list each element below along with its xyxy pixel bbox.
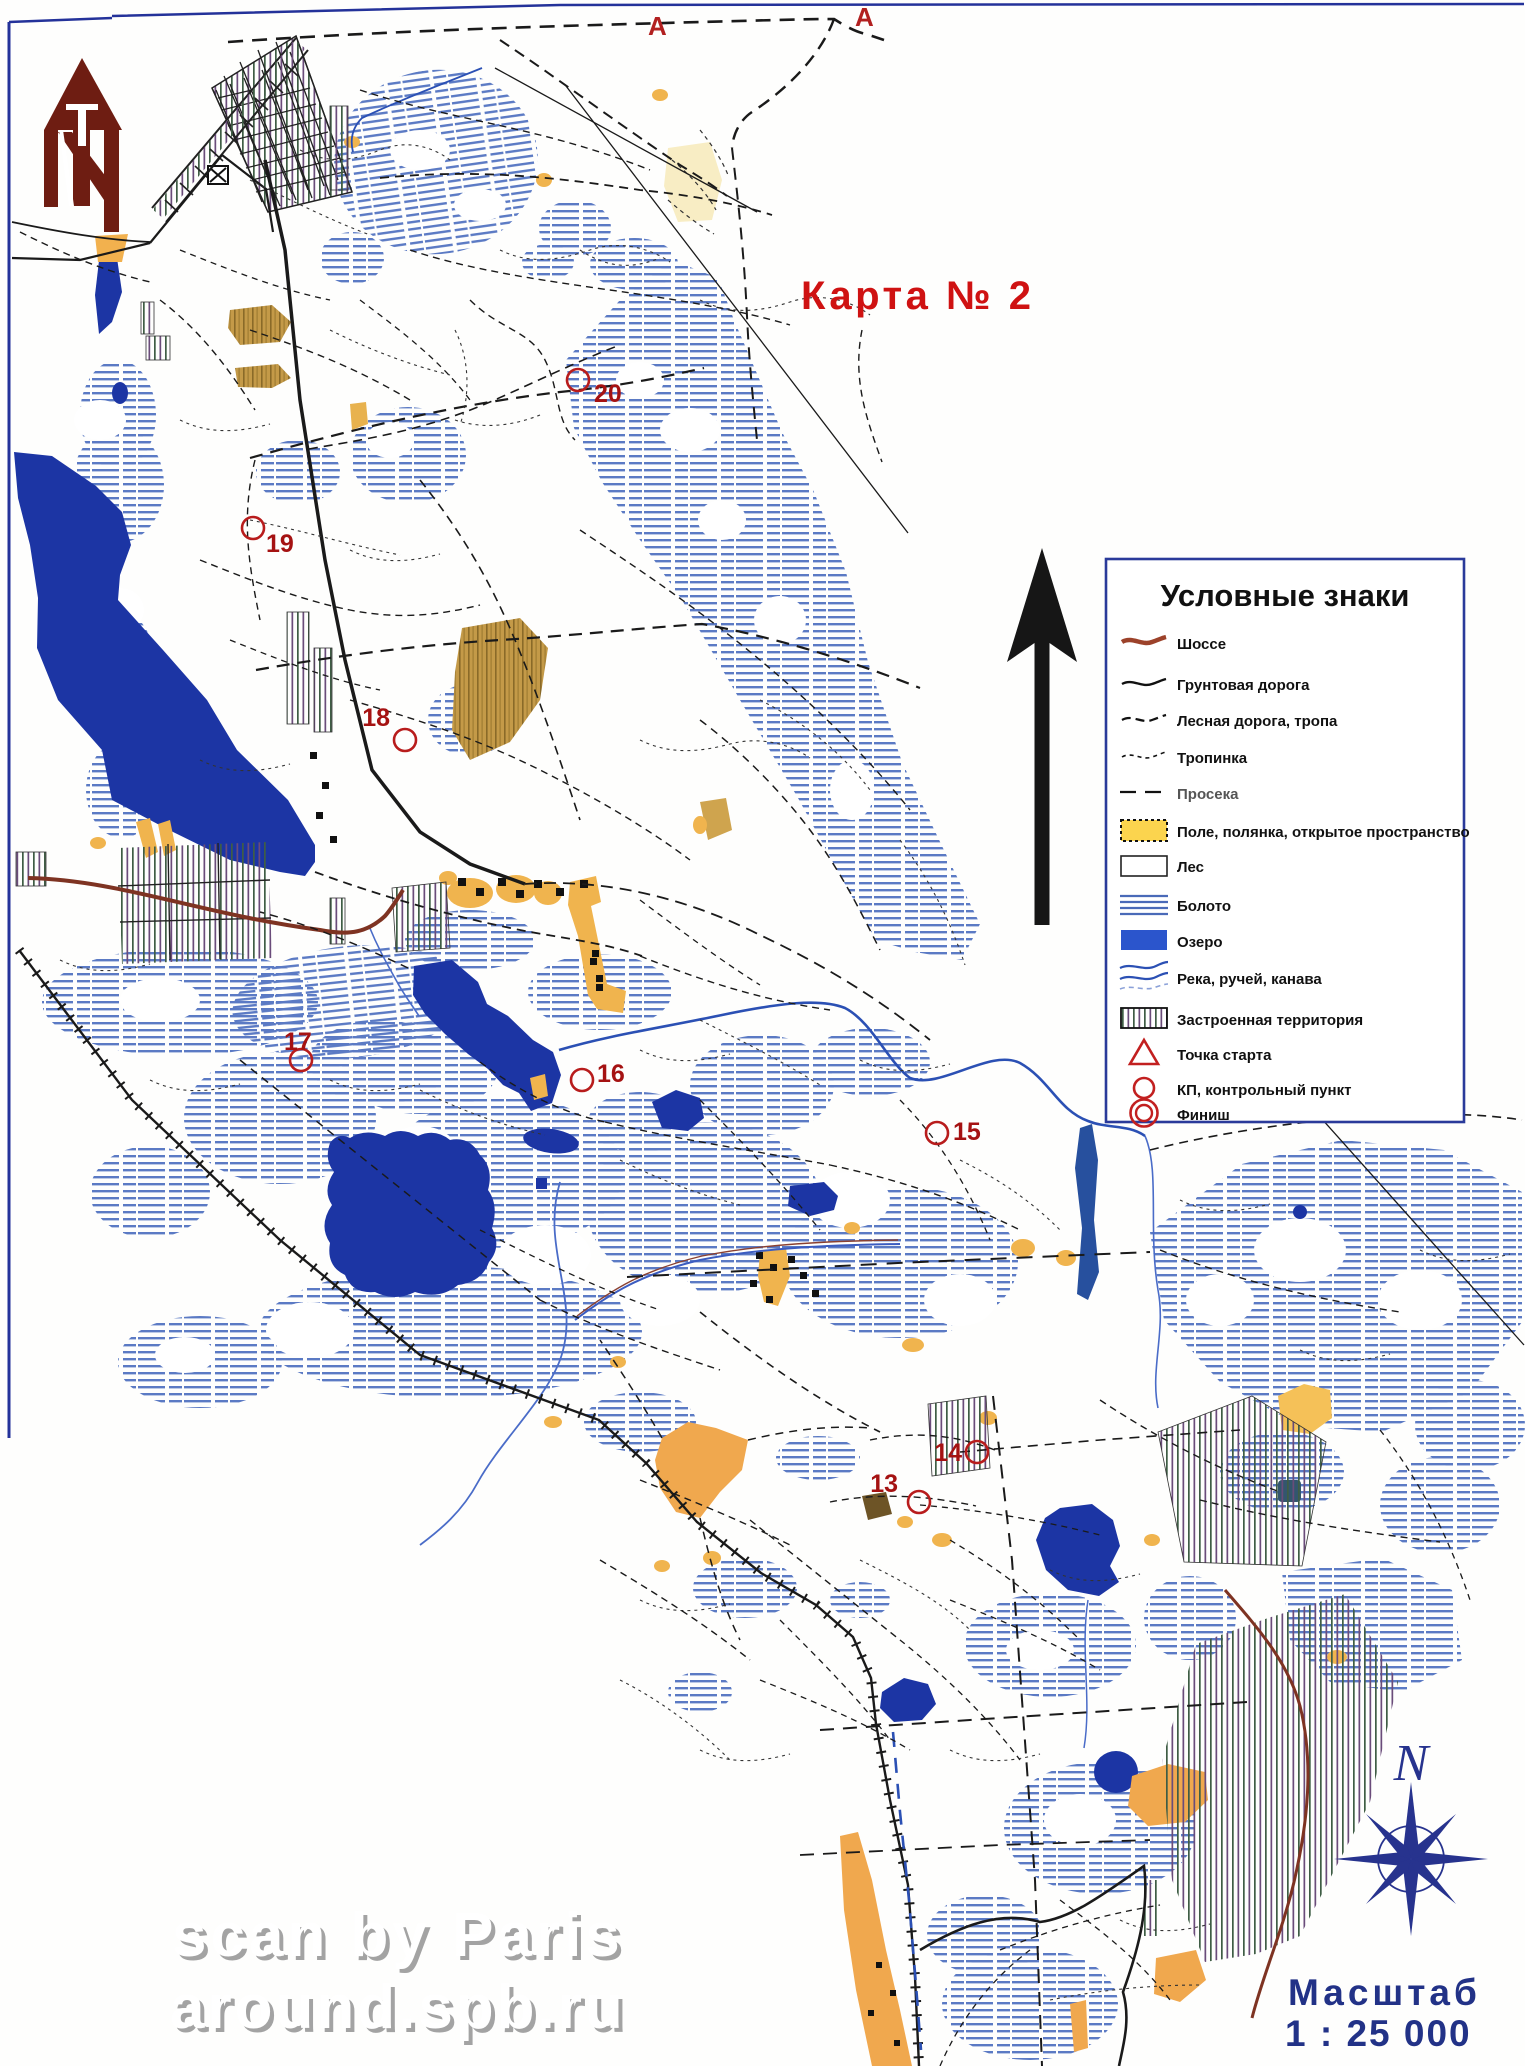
svg-text:17: 17 [284,1028,312,1056]
svg-text:A: A [648,11,667,41]
svg-text:16: 16 [597,1060,625,1088]
svg-text:Точка старта: Точка старта [1177,1047,1272,1064]
svg-text:Просека: Просека [1177,786,1239,803]
svg-text:Финиш: Финиш [1177,1107,1230,1124]
svg-text:Тропинка: Тропинка [1177,750,1248,767]
svg-text:Лесная дорога, тропа: Лесная дорога, тропа [1177,713,1338,730]
svg-text:Лес: Лес [1177,859,1204,876]
svg-text:Поле, полянка, открытое простр: Поле, полянка, открытое пространство [1177,824,1470,841]
svg-text:around.spb.ru: around.spb.ru [170,1973,626,2042]
svg-text:15: 15 [953,1118,981,1146]
svg-text:N: N [1393,1735,1432,1792]
svg-text:Масштаб: Масштаб [1288,1972,1481,2013]
svg-text:19: 19 [266,530,294,558]
svg-text:Болото: Болото [1177,898,1231,915]
svg-text:20: 20 [594,380,622,408]
svg-text:Река, ручей, канава: Река, ручей, канава [1177,971,1322,988]
svg-text:Озеро: Озеро [1177,934,1223,951]
svg-text:scan by Paris: scan by Paris [172,1901,624,1970]
svg-text:13: 13 [870,1470,898,1498]
svg-text:Условные знаки: Условные знаки [1161,578,1410,613]
svg-text:18: 18 [362,704,390,732]
svg-text:Грунтовая дорога: Грунтовая дорога [1177,677,1310,694]
svg-text:A: A [855,2,874,32]
svg-text:Застроенная территория: Застроенная территория [1177,1012,1363,1029]
svg-text:1 : 25 000: 1 : 25 000 [1285,2013,1472,2054]
svg-text:Шоссе: Шоссе [1177,636,1226,653]
svg-text:14: 14 [934,1439,962,1467]
svg-text:КП, контрольный пункт: КП, контрольный пункт [1177,1082,1351,1099]
svg-text:Карта № 2: Карта № 2 [801,274,1034,318]
